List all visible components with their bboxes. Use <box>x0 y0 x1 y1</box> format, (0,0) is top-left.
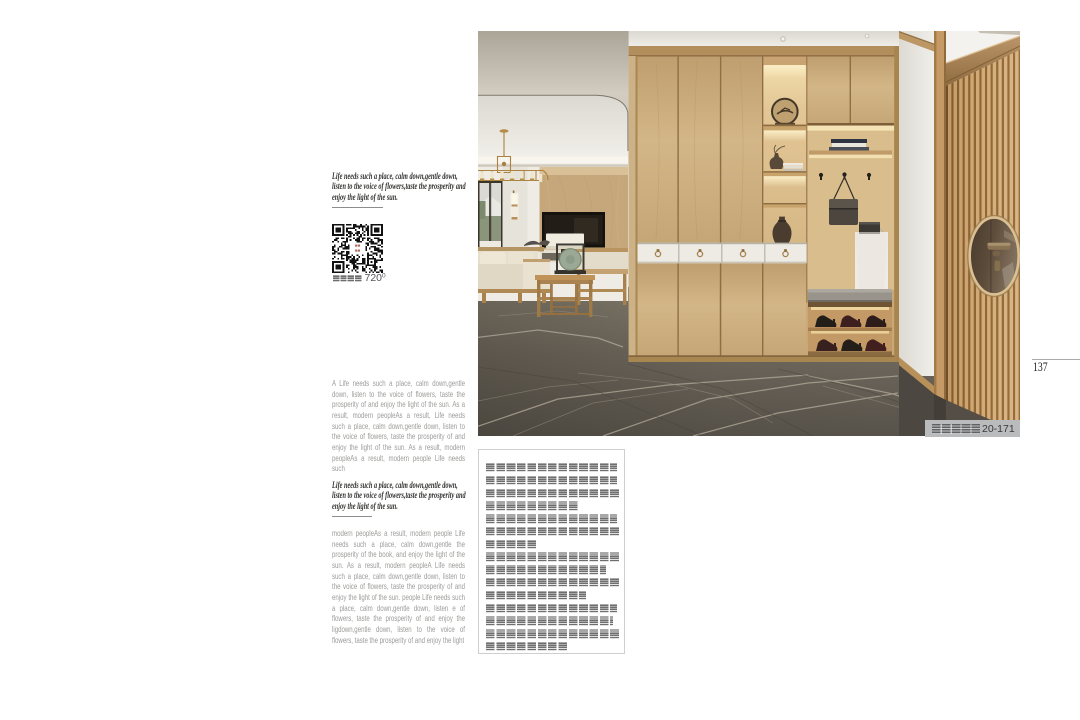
svg-text:■■: ■■ <box>354 248 360 253</box>
